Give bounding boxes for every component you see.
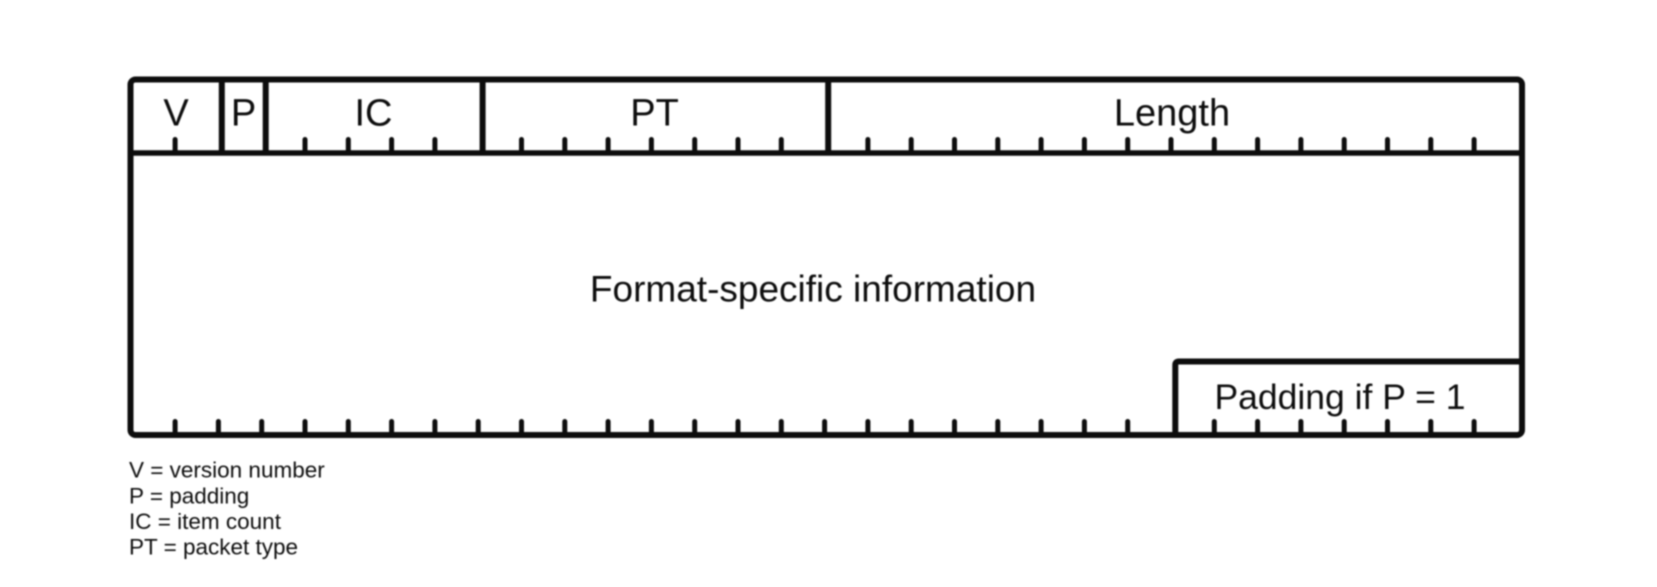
svg-text:PT: PT [630, 93, 679, 135]
svg-text:Padding if P = 1: Padding if P = 1 [1215, 377, 1466, 417]
svg-text:Format-specific information: Format-specific information [590, 269, 1036, 310]
svg-text:PT = packet type: PT = packet type [129, 535, 298, 560]
svg-text:P: P [231, 93, 256, 135]
svg-text:V = version number: V = version number [129, 458, 325, 483]
svg-text:IC = item count: IC = item count [129, 509, 282, 534]
svg-text:Length: Length [1114, 93, 1230, 135]
svg-text:V: V [163, 93, 189, 135]
svg-text:P = padding: P = padding [129, 484, 249, 509]
svg-text:IC: IC [355, 93, 393, 135]
